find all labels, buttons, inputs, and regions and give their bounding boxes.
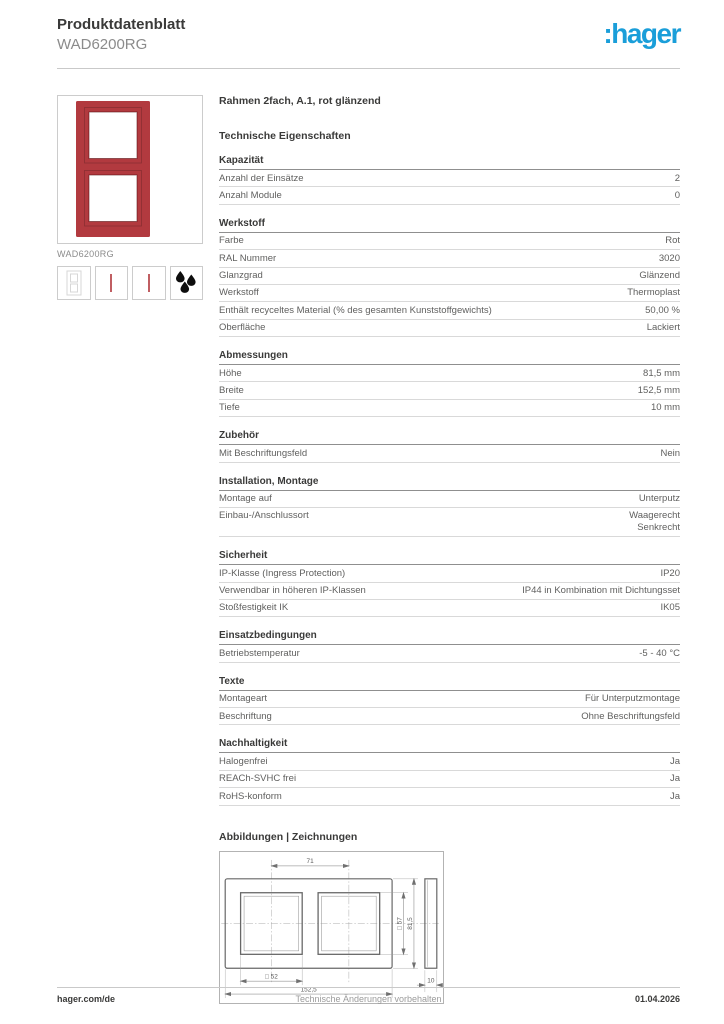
- spec-section-title: Kapazität: [219, 155, 680, 170]
- spec-row: Tiefe10 mm: [219, 400, 680, 417]
- spec-row: Höhe81,5 mm: [219, 365, 680, 382]
- spec-section: Installation, MontageMontage aufUnterput…: [219, 476, 680, 538]
- spec-row: Verwendbar in höheren IP-KlassenIP44 in …: [219, 583, 680, 600]
- technical-drawing: 71 □ 57 81,5: [219, 851, 444, 1004]
- spec-section-title: Installation, Montage: [219, 476, 680, 491]
- thumbnail-frame-profile-2: [132, 266, 166, 300]
- hager-logo: :hager: [603, 19, 680, 50]
- spec-label: Höhe: [219, 368, 242, 380]
- spec-section-title: Texte: [219, 676, 680, 691]
- spec-value: Glänzend: [639, 270, 680, 282]
- spec-section: WerkstoffFarbeRotRAL Nummer3020Glanzgrad…: [219, 218, 680, 337]
- spec-row: RoHS-konformJa: [219, 788, 680, 805]
- spec-row: Stoßfestigkeit IKIK05: [219, 600, 680, 617]
- drawings-title: Abbildungen | Zeichnungen: [219, 831, 680, 843]
- spec-label: RAL Nummer: [219, 253, 276, 265]
- spec-value: IP20: [660, 568, 680, 580]
- spec-row: OberflächeLackiert: [219, 320, 680, 337]
- dimension-drawing: 71 □ 57 81,5: [220, 852, 443, 1003]
- spec-value: 3020: [659, 253, 680, 265]
- spec-section: TexteMontageartFür UnterputzmontageBesch…: [219, 676, 680, 726]
- spec-section: EinsatzbedingungenBetriebstemperatur-5 -…: [219, 630, 680, 662]
- spec-row: WerkstoffThermoplast: [219, 285, 680, 302]
- lacquer-drops-icon: [174, 271, 198, 295]
- spec-value: 81,5 mm: [643, 368, 680, 380]
- spec-row: BeschriftungOhne Beschriftungsfeld: [219, 708, 680, 725]
- spec-section-title: Abmessungen: [219, 350, 680, 365]
- spec-value: Ohne Beschriftungsfeld: [581, 711, 680, 723]
- product-image: [57, 95, 203, 244]
- spec-row: Betriebstemperatur-5 - 40 °C: [219, 645, 680, 662]
- header-titles: Produktdatenblatt WAD6200RG: [57, 15, 185, 54]
- spec-row: IP-Klasse (Ingress Protection)IP20: [219, 565, 680, 582]
- spec-label: Enthält recyceltes Material (% des gesam…: [219, 305, 492, 317]
- spec-value: 10 mm: [651, 402, 680, 414]
- dim-height-label: 81,5: [407, 916, 414, 929]
- spec-label: Mit Beschriftungsfeld: [219, 448, 307, 460]
- spec-section-title: Werkstoff: [219, 218, 680, 233]
- thumbnail-frame-profile-1: [95, 266, 129, 300]
- thumbnail-lacquer: [170, 266, 204, 300]
- spec-section: SicherheitIP-Klasse (Ingress Protection)…: [219, 550, 680, 617]
- document-title: Produktdatenblatt: [57, 15, 185, 35]
- spec-row: RAL Nummer3020: [219, 250, 680, 267]
- spec-value: IK05: [660, 602, 680, 614]
- spec-label: Halogenfrei: [219, 756, 268, 768]
- dim-depth-label: 10: [427, 977, 435, 984]
- spec-row: Breite152,5 mm: [219, 382, 680, 399]
- spec-value: Waagerecht Senkrecht: [629, 510, 680, 534]
- spec-row: REACh-SVHC freiJa: [219, 771, 680, 788]
- spec-row: Enthält recyceltes Material (% des gesam…: [219, 302, 680, 319]
- spec-value: IP44 in Kombination mit Dichtungsset: [522, 585, 680, 597]
- spec-section: NachhaltigkeitHalogenfreiJaREACh-SVHC fr…: [219, 738, 680, 805]
- spec-value: -5 - 40 °C: [639, 648, 680, 660]
- sections: KapazitätAnzahl der Einsätze2Anzahl Modu…: [219, 155, 680, 806]
- spec-label: Betriebstemperatur: [219, 648, 300, 660]
- spec-value: Thermoplast: [627, 287, 680, 299]
- spec-label: IP-Klasse (Ingress Protection): [219, 568, 345, 580]
- spec-value: Ja: [670, 791, 680, 803]
- spec-value: 0: [675, 190, 680, 202]
- specs-column: Rahmen 2fach, A.1, rot glänzend Technisc…: [219, 95, 680, 1004]
- page-footer: hager.com/de Technische Änderungen vorbe…: [57, 987, 680, 1004]
- spec-row: Anzahl der Einsätze2: [219, 170, 680, 187]
- spec-label: RoHS-konform: [219, 791, 282, 803]
- spec-label: Stoßfestigkeit IK: [219, 602, 288, 614]
- frame-profile-icon: [148, 274, 150, 292]
- spec-label: Breite: [219, 385, 244, 397]
- spec-section: AbmessungenHöhe81,5 mmBreite152,5 mmTief…: [219, 350, 680, 417]
- spec-value: Lackiert: [647, 322, 680, 334]
- dim-centers-label: 71: [307, 857, 315, 864]
- spec-row: Montage aufUnterputz: [219, 491, 680, 508]
- product-reference: WAD6200RG: [57, 35, 185, 55]
- spec-section-title: Sicherheit: [219, 550, 680, 565]
- product-media-column: WAD6200RG: [57, 95, 203, 1004]
- spec-value: Für Unterputzmontage: [585, 693, 680, 705]
- spec-label: Farbe: [219, 235, 244, 247]
- footer-notice: Technische Änderungen vorbehalten: [57, 994, 680, 1004]
- spec-value: 2: [675, 173, 680, 185]
- spec-value: Nein: [660, 448, 680, 460]
- spec-label: Werkstoff: [219, 287, 259, 299]
- spec-label: Glanzgrad: [219, 270, 263, 282]
- spec-label: Montageart: [219, 693, 267, 705]
- spec-label: Beschriftung: [219, 711, 272, 723]
- frame-profile-icon: [110, 274, 112, 292]
- spec-label: Oberfläche: [219, 322, 265, 334]
- spec-row: MontageartFür Unterputzmontage: [219, 691, 680, 708]
- spec-value: Ja: [670, 756, 680, 768]
- dim-window-label: □ 57: [397, 916, 404, 929]
- spec-row: FarbeRot: [219, 233, 680, 250]
- spec-row: Einbau-/AnschlussortWaagerecht Senkrecht: [219, 508, 680, 537]
- thumbnail-frame-outline: [57, 266, 91, 300]
- spec-value: Ja: [670, 773, 680, 785]
- spec-row: HalogenfreiJa: [219, 753, 680, 770]
- product-image-caption: WAD6200RG: [57, 249, 203, 259]
- spec-label: Einbau-/Anschlussort: [219, 510, 309, 534]
- spec-label: Montage auf: [219, 493, 272, 505]
- spec-label: REACh-SVHC frei: [219, 773, 296, 785]
- spec-value: Rot: [665, 235, 680, 247]
- spec-row: Anzahl Module0: [219, 187, 680, 204]
- spec-row: Mit BeschriftungsfeldNein: [219, 445, 680, 462]
- spec-section-title: Nachhaltigkeit: [219, 738, 680, 753]
- spec-section: ZubehörMit BeschriftungsfeldNein: [219, 430, 680, 462]
- spec-value: 152,5 mm: [638, 385, 680, 397]
- frame-outline-icon: [65, 270, 83, 296]
- product-frame-graphic: [58, 96, 202, 243]
- spec-row: GlanzgradGlänzend: [219, 268, 680, 285]
- spec-label: Anzahl der Einsätze: [219, 173, 304, 185]
- spec-value: Unterputz: [639, 493, 680, 505]
- spec-section: KapazitätAnzahl der Einsätze2Anzahl Modu…: [219, 155, 680, 205]
- dim-opening-label: □ 52: [265, 973, 278, 980]
- page-header: Produktdatenblatt WAD6200RG :hager: [57, 0, 680, 69]
- spec-label: Verwendbar in höheren IP-Klassen: [219, 585, 366, 597]
- tech-properties-title: Technische Eigenschaften: [219, 130, 680, 142]
- spec-section-title: Zubehör: [219, 430, 680, 445]
- spec-label: Tiefe: [219, 402, 240, 414]
- main-content: WAD6200RG: [57, 95, 680, 1004]
- spec-label: Anzahl Module: [219, 190, 282, 202]
- thumbnail-strip: [57, 266, 203, 300]
- spec-value: 50,00 %: [645, 305, 680, 317]
- spec-section-title: Einsatzbedingungen: [219, 630, 680, 645]
- product-title: Rahmen 2fach, A.1, rot glänzend: [219, 95, 680, 107]
- datasheet-page: Produktdatenblatt WAD6200RG :hager WAD62…: [0, 0, 724, 1024]
